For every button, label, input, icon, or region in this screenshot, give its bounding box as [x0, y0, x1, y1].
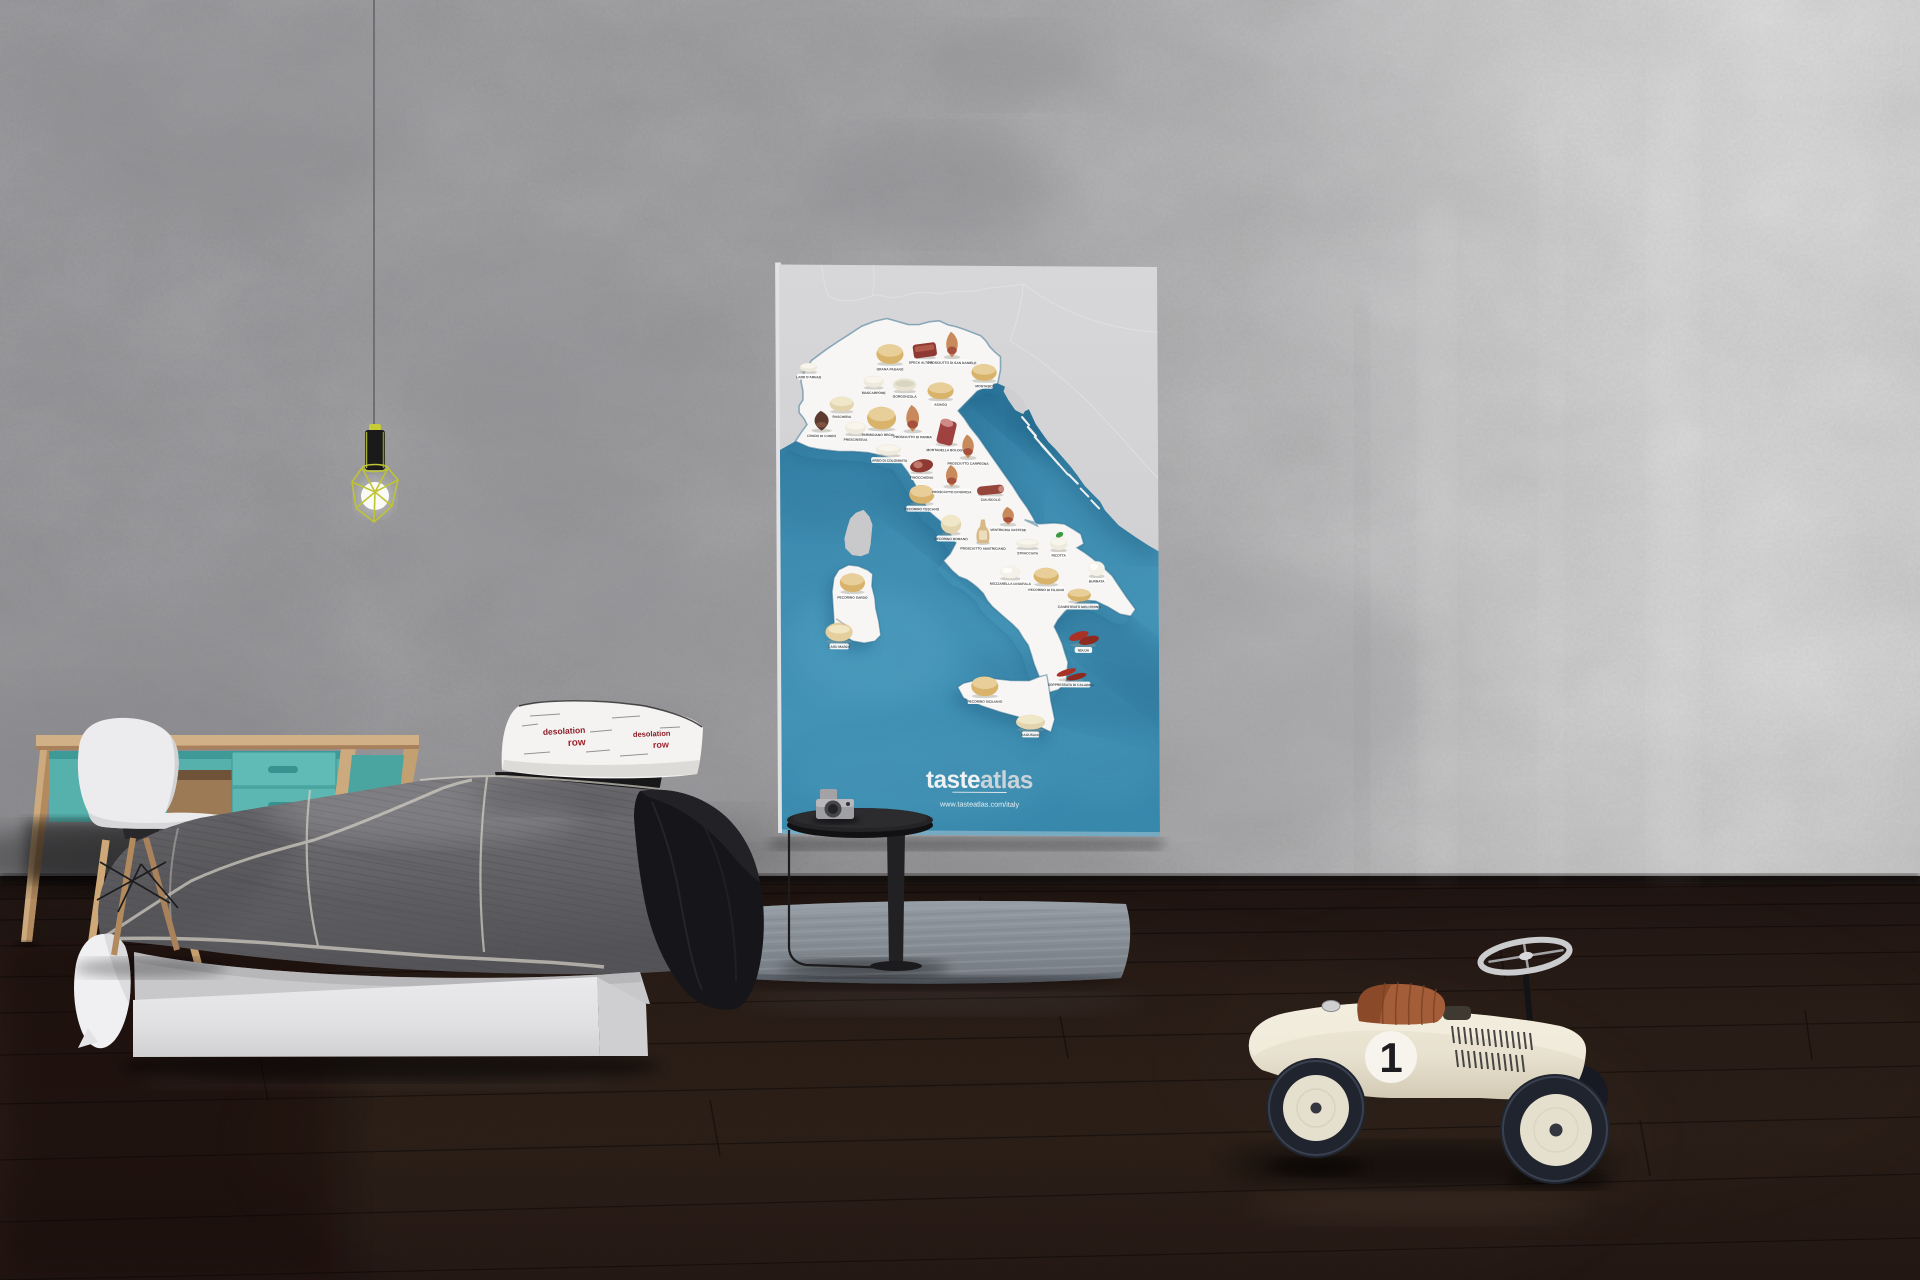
- svg-text:LARD D’ARNAD: LARD D’ARNAD: [796, 375, 822, 379]
- svg-text:MASCARPONE: MASCARPONE: [862, 391, 887, 395]
- svg-text:GRANA PADANO: GRANA PADANO: [877, 367, 904, 371]
- svg-text:CIAUSCOLO: CIAUSCOLO: [981, 498, 1001, 502]
- svg-text:PECORINO ROMANO: PECORINO ROMANO: [934, 537, 968, 541]
- svg-text:GORGONZOLA: GORGONZOLA: [893, 395, 918, 399]
- svg-text:NDUJA: NDUJA: [1078, 648, 1090, 652]
- svg-text:VENTRICINA VASTESE: VENTRICINA VASTESE: [990, 528, 1027, 532]
- svg-text:tasteatlas: tasteatlas: [926, 766, 1033, 794]
- svg-text:row: row: [653, 739, 670, 750]
- svg-text:PECORINO DI FILIANO: PECORINO DI FILIANO: [1028, 588, 1064, 592]
- svg-text:PROSCIUTTO DI NORCIA: PROSCIUTTO DI NORCIA: [932, 490, 972, 494]
- svg-text:FINOCCHIONA: FINOCCHIONA: [910, 476, 934, 480]
- svg-text:LARDO DI COLONNATA: LARDO DI COLONNATA: [870, 459, 908, 463]
- svg-text:SOPPRESSATA DI CALABRIA: SOPPRESSATA DI CALABRIA: [1048, 683, 1095, 687]
- svg-text:row: row: [568, 737, 587, 749]
- svg-text:RICOTTA: RICOTTA: [1052, 554, 1067, 558]
- svg-text:www.tasteatlas.com/italy: www.tasteatlas.com/italy: [939, 799, 1019, 809]
- svg-text:RASCHERA: RASCHERA: [833, 415, 852, 419]
- svg-text:PROSCIUTTO AMATRICIANO: PROSCIUTTO AMATRICIANO: [960, 547, 1006, 551]
- svg-text:PROSCIUTTO DI PARMA: PROSCIUTTO DI PARMA: [893, 435, 932, 439]
- svg-text:MORTADELLA BOLOGNA: MORTADELLA BOLOGNA: [927, 448, 968, 452]
- svg-text:PRESCINSEUA: PRESCINSEUA: [844, 438, 868, 442]
- svg-text:PECORINO TOSCANO: PECORINO TOSCANO: [904, 507, 939, 511]
- svg-text:ASIAGO: ASIAGO: [934, 403, 947, 407]
- svg-text:CRUDO DI CUNEO: CRUDO DI CUNEO: [807, 434, 836, 438]
- svg-text:MOZZARELLA DI BUFALA: MOZZARELLA DI BUFALA: [990, 582, 1032, 586]
- svg-text:CASU MARZU: CASU MARZU: [828, 645, 851, 649]
- svg-text:PROSCIUTTO CARPEGNA: PROSCIUTTO CARPEGNA: [947, 462, 989, 466]
- svg-text:STRACCIATA: STRACCIATA: [1017, 551, 1038, 555]
- svg-text:desolation: desolation: [633, 729, 671, 739]
- svg-text:RAGUSANO: RAGUSANO: [1021, 733, 1041, 737]
- svg-text:1: 1: [1379, 1034, 1402, 1081]
- svg-text:BURRATA: BURRATA: [1089, 579, 1105, 583]
- svg-text:PECORINO SICILIANO: PECORINO SICILIANO: [967, 700, 1002, 704]
- svg-text:PROSCIUTTO DI SAN DANIELE: PROSCIUTTO DI SAN DANIELE: [928, 361, 978, 365]
- svg-text:MONTASIO: MONTASIO: [975, 384, 993, 388]
- svg-text:CANESTRATO MOLITERNO: CANESTRATO MOLITERNO: [1058, 605, 1102, 609]
- svg-text:PECORINO SARDO: PECORINO SARDO: [837, 596, 868, 600]
